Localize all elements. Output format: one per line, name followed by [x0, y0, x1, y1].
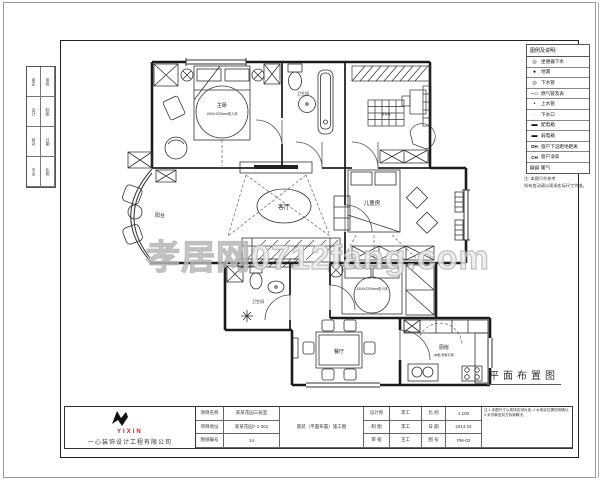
- legend-row: ◎坐便器下水: [527, 57, 589, 68]
- legend-box: 图例及说明: ◎坐便器下水 ●地漏 ◎下水管 ─▭燃气管及表 •上水管 ·下水口…: [526, 44, 590, 174]
- label-kitchen-sub: (地柜 吊柜示意): [434, 352, 455, 357]
- legend-note: 注: 本图只作参考 如有变动请以现场实际尺寸为准。: [524, 176, 594, 189]
- dh-symbol: DH: [528, 144, 541, 149]
- logo-text: YIXIN: [117, 429, 143, 435]
- tb-label: 比 例: [422, 407, 446, 421]
- label-bath1: 卫生间: [297, 90, 309, 96]
- legend-label: 地漏: [541, 69, 550, 75]
- tb-label: 图 号: [422, 434, 446, 448]
- tb-value: PM-03: [446, 434, 482, 448]
- label-master: 主卧: [216, 101, 228, 109]
- label-dining: 餐厅: [334, 348, 344, 355]
- tb-label: 日 期: [422, 421, 446, 435]
- tb-label: 项目地址: [196, 421, 224, 435]
- label-living: 客厅: [278, 203, 290, 211]
- label-bed2-size: 1500×2200mm双人床: [357, 286, 389, 291]
- company-logo-icon: [109, 409, 131, 429]
- company-name: 一心装饰设计工程有限公司: [67, 437, 193, 446]
- leisure-room-furniture: [352, 66, 435, 149]
- label-master-size: 1500×2200mm双人床: [207, 111, 239, 116]
- balcony-furniture: [121, 184, 143, 245]
- legend-label: 窗户下沿距地距离: [541, 144, 578, 150]
- tb-value: 某某花园三居室: [224, 407, 280, 421]
- label-kids: 儿童房: [364, 199, 381, 207]
- bathroom1-fixtures: [288, 64, 333, 134]
- tb-value: 2014.04: [446, 421, 482, 435]
- tb-value: 某某花园7-1-301: [224, 421, 280, 435]
- exterior-walls: [150, 62, 490, 385]
- tb-label: 设计师: [364, 407, 390, 421]
- title-block-grid: 项目名称 某某花园三居室 家装（平面布置）施工图 设计师 李工 比 例 1:10…: [196, 407, 572, 448]
- legend-label: 燃气管及表: [541, 91, 564, 97]
- legend-row: ▬弱电箱: [527, 131, 589, 142]
- plan-title: 平面布置图: [487, 366, 561, 384]
- toilet-drain-icon: ◎: [528, 59, 541, 65]
- tb-value: 李工: [390, 421, 422, 435]
- legend-row: ·下水口: [527, 110, 589, 121]
- tb-value: 李工: [390, 407, 422, 421]
- legend-label: 下水口: [541, 112, 555, 118]
- water-supply-icon: •: [528, 101, 541, 107]
- tb-value: 王工: [390, 434, 422, 448]
- tb-label: 图纸编号: [196, 434, 224, 448]
- legend-label: 暖气: [541, 165, 550, 171]
- label-kitchen: 厨房: [439, 344, 449, 351]
- legend-row: ▬配电箱: [527, 121, 589, 132]
- title-block: YIXIN 一心装饰设计工程有限公司 项目名称 某某花园三居室 家装（平面布置）…: [64, 406, 573, 449]
- legend-row: ▤▤暖气: [527, 163, 589, 173]
- drain-pipe-icon: ◎: [528, 80, 541, 86]
- legend-title: 图例及说明:: [527, 45, 589, 57]
- ch-symbol: CH: [528, 155, 541, 160]
- drawing-sheet: 审定 审核 设计 制图 校对 日期 专业 比例: [0, 0, 600, 480]
- low-voltage-box-icon: ▬: [528, 133, 541, 139]
- tb-label: 制 图: [364, 421, 390, 435]
- drain-outlet-icon: ·: [528, 112, 541, 118]
- legend-row: ◎下水管: [527, 78, 589, 89]
- legend-row: •上水管: [527, 99, 589, 110]
- label-balcony: 阳台: [155, 212, 165, 219]
- tb-label: 审 核: [364, 434, 390, 448]
- gas-pipe-icon: ─▭: [528, 91, 541, 97]
- legend-label: 上水管: [541, 101, 555, 107]
- legend-label: 下水管: [541, 80, 555, 86]
- label-bath2: 卫生间: [252, 298, 264, 304]
- legend-row: DH窗户下沿距地距离: [527, 142, 589, 153]
- note-line2: 如有变动请以现场实际尺寸为准。: [524, 183, 587, 188]
- radiator-icon: ▤▤: [528, 165, 541, 171]
- legend-label: 配电箱: [541, 122, 555, 128]
- legend-row: ─▭燃气管及表: [527, 89, 589, 100]
- tb-drawing-name: 家装（平面布置）施工图: [280, 407, 364, 448]
- tb-notes: 注:1.本图尺寸以现场实测为准; 2.水电定位需现场确认; 3.未尽事宜双方协商…: [482, 407, 572, 448]
- legend-row: ●地漏: [527, 68, 589, 79]
- legend-label: 弱电箱: [541, 133, 555, 139]
- label-mahjong: 麻将桌: [381, 111, 390, 116]
- legend-label: 窗户净高: [541, 154, 559, 160]
- watermark: 孝居网0712fang.com: [146, 230, 490, 279]
- floor-drain-icon: ●: [528, 69, 541, 75]
- tb-label: 项目名称: [196, 407, 224, 421]
- note-line1: 本图只作参考: [531, 176, 556, 181]
- legend-row: CH窗户净高: [527, 152, 589, 163]
- tb-value: 1:100: [446, 407, 482, 421]
- tb-value: 14: [224, 434, 280, 448]
- company-logo-cell: YIXIN 一心装饰设计工程有限公司: [65, 407, 196, 448]
- plan-title-text: 平面布置图: [487, 371, 561, 385]
- legend-label: 坐便器下水: [541, 59, 564, 65]
- note-mark: 注:: [524, 176, 529, 181]
- power-box-icon: ▬: [528, 122, 541, 128]
